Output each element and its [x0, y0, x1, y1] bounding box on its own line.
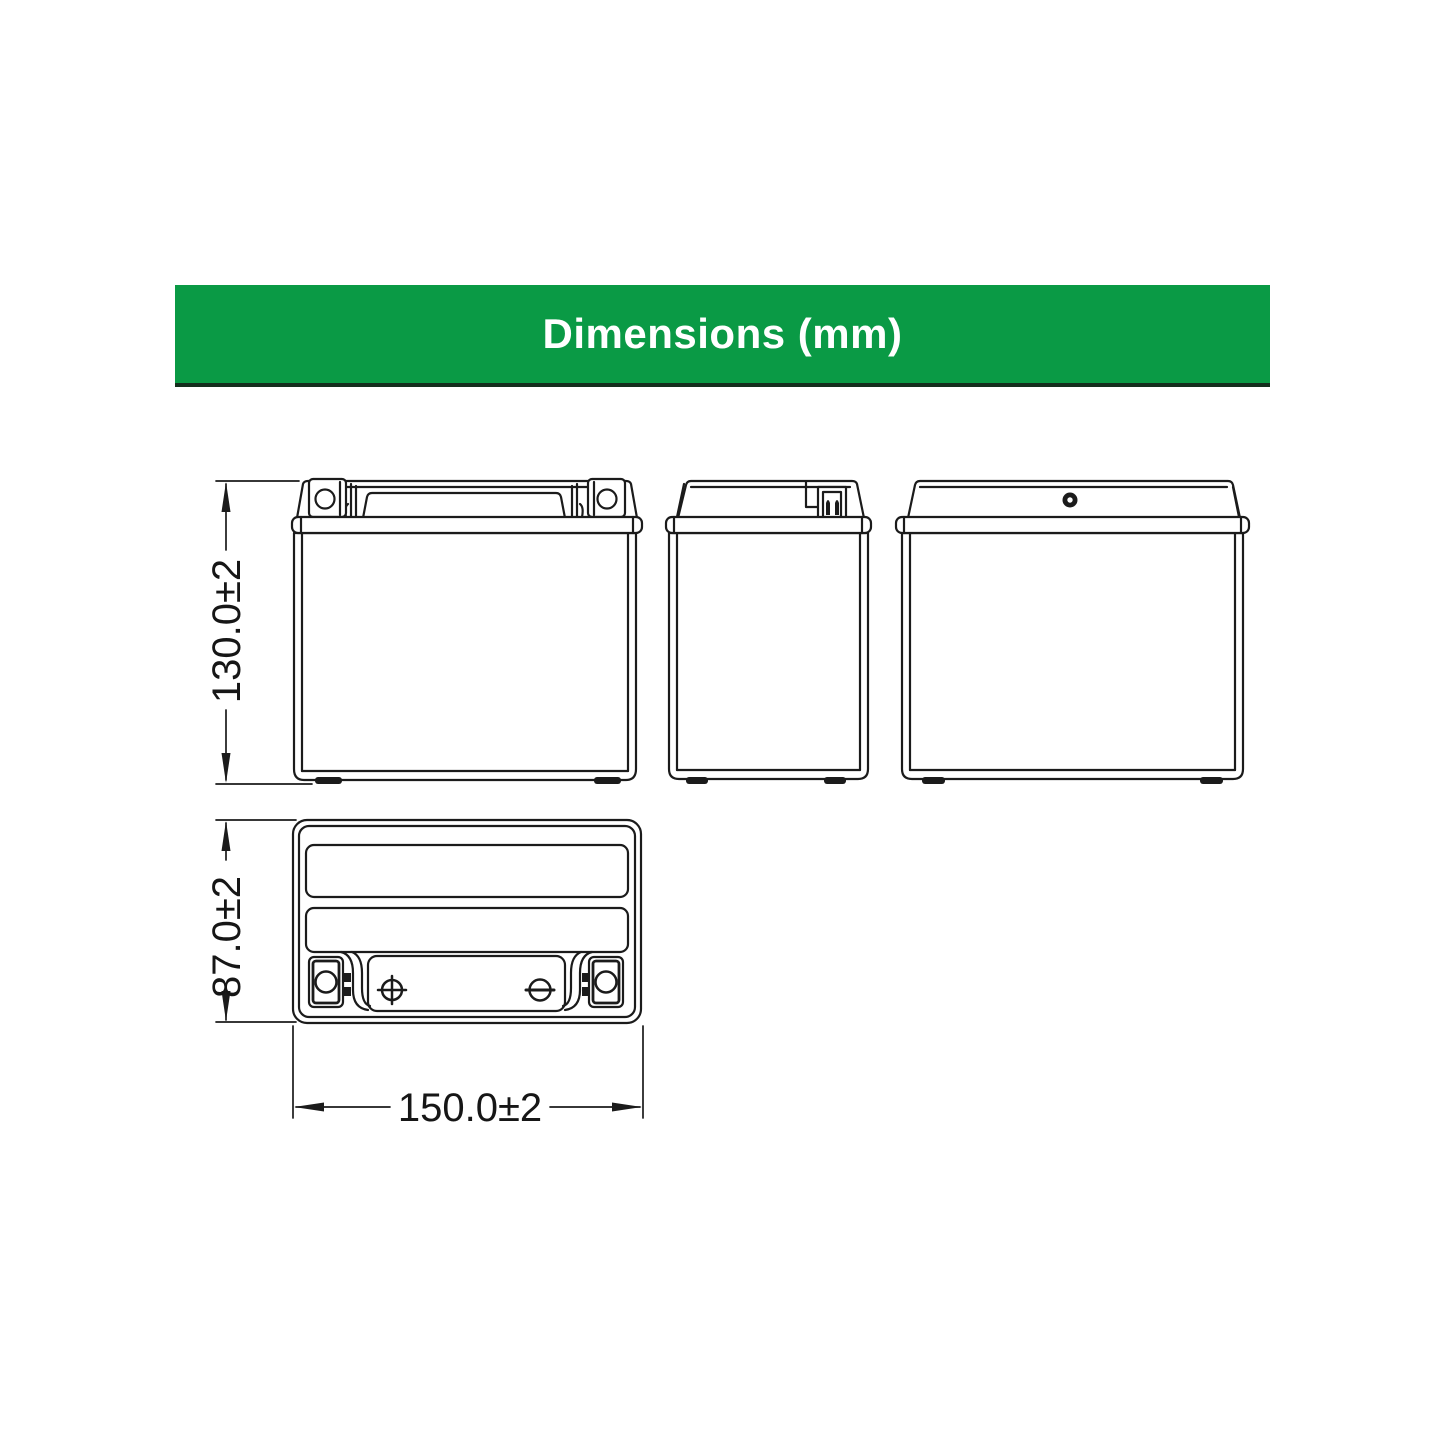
width-dimension: 150.0±2 — [293, 1026, 643, 1130]
side-terminal-slot — [818, 487, 846, 518]
depth-dimension: 87.0±2 — [205, 820, 296, 1022]
front-right-terminal — [588, 479, 625, 517]
arrowhead-up-icon — [222, 821, 231, 851]
foot-pad — [824, 777, 846, 784]
foot-pad — [594, 777, 621, 784]
top-left-terminal — [309, 957, 343, 1007]
arrowhead-left-icon — [294, 1103, 324, 1112]
foot-pad — [922, 777, 945, 784]
front-left-terminal — [309, 479, 346, 517]
arrowhead-down-icon — [222, 753, 231, 783]
top-view — [293, 820, 641, 1023]
side-view — [666, 481, 871, 784]
height-dimension-label: 130.0±2 — [205, 559, 249, 703]
arrowhead-right-icon — [612, 1103, 642, 1112]
vent-hole — [1063, 493, 1078, 508]
rear-view — [896, 481, 1249, 784]
dimensions-drawing: 130.0±2 87.0±2 150.0±2 — [0, 0, 1445, 1445]
arrowhead-up-icon — [222, 482, 231, 512]
foot-pad — [686, 777, 708, 784]
depth-dimension-label: 87.0±2 — [205, 876, 249, 998]
top-right-terminal — [589, 957, 623, 1007]
dimensions-page: Dimensions (mm) — [0, 0, 1445, 1445]
width-dimension-label: 150.0±2 — [398, 1086, 542, 1130]
front-view — [292, 479, 642, 784]
foot-pad — [315, 777, 342, 784]
foot-pad — [1200, 777, 1223, 784]
